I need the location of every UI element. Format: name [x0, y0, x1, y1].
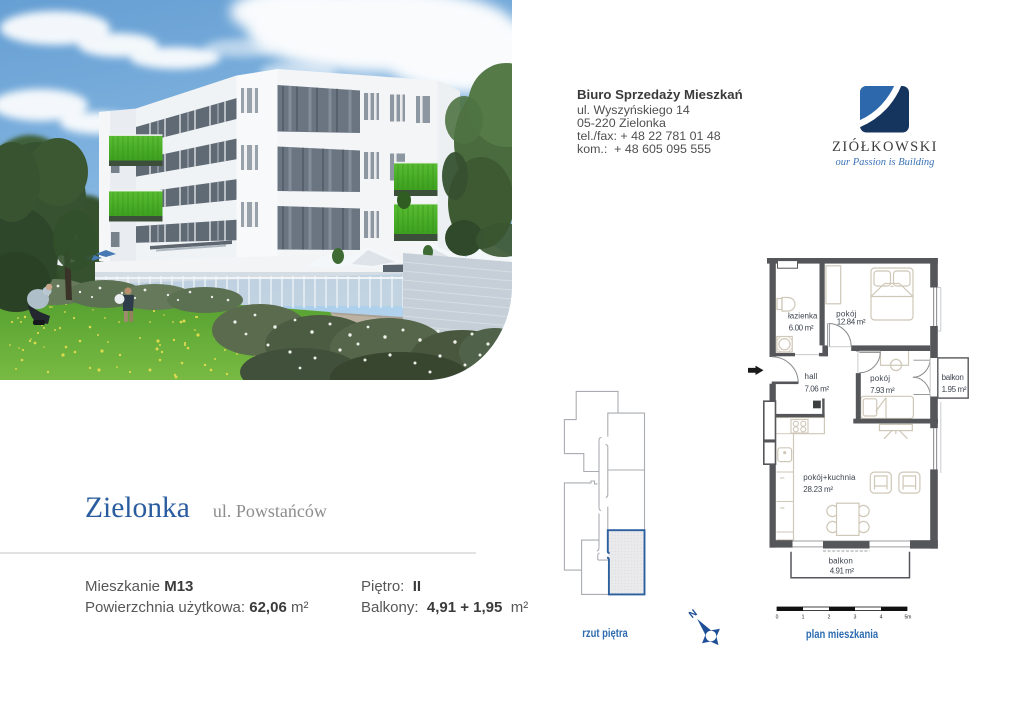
svg-text:pokój+kuchnia: pokój+kuchnia — [803, 473, 856, 482]
svg-text:balkon: balkon — [942, 373, 964, 382]
svg-text:łazienka: łazienka — [788, 312, 818, 321]
svg-text:pokój: pokój — [870, 374, 890, 383]
svg-text:N: N — [687, 608, 700, 621]
svg-text:1.95 m²: 1.95 m² — [942, 385, 967, 394]
svg-text:1: 1 — [802, 615, 805, 621]
svg-text:7.06 m²: 7.06 m² — [805, 385, 830, 394]
svg-text:0: 0 — [776, 615, 779, 621]
svg-text:7.93 m²: 7.93 m² — [870, 386, 895, 395]
svg-text:zm.: zm. — [780, 476, 785, 480]
svg-text:lod.: lod. — [780, 506, 785, 510]
svg-text:5m: 5m — [905, 615, 912, 621]
svg-text:6.00 m²: 6.00 m² — [789, 324, 814, 333]
svg-text:4.91 m²: 4.91 m² — [830, 566, 855, 575]
svg-text:28.23 m²: 28.23 m² — [803, 485, 833, 494]
svg-text:2: 2 — [828, 615, 831, 621]
svg-text:hall: hall — [805, 372, 818, 381]
svg-text:4: 4 — [880, 615, 883, 621]
svg-text:3: 3 — [854, 615, 857, 621]
svg-text:12.84 m²: 12.84 m² — [837, 317, 866, 326]
svg-text:balkon: balkon — [829, 556, 853, 565]
